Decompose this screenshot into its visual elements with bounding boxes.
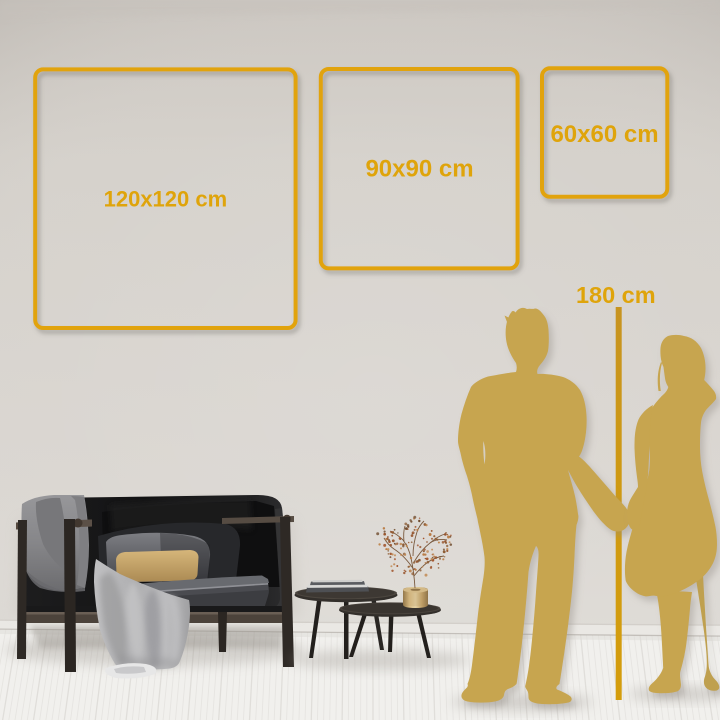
svg-text:90x90 cm: 90x90 cm (365, 156, 473, 183)
svg-text:60x60 cm: 60x60 cm (550, 121, 658, 148)
svg-text:120x120 cm: 120x120 cm (104, 186, 228, 211)
svg-text:180 cm: 180 cm (576, 282, 656, 308)
